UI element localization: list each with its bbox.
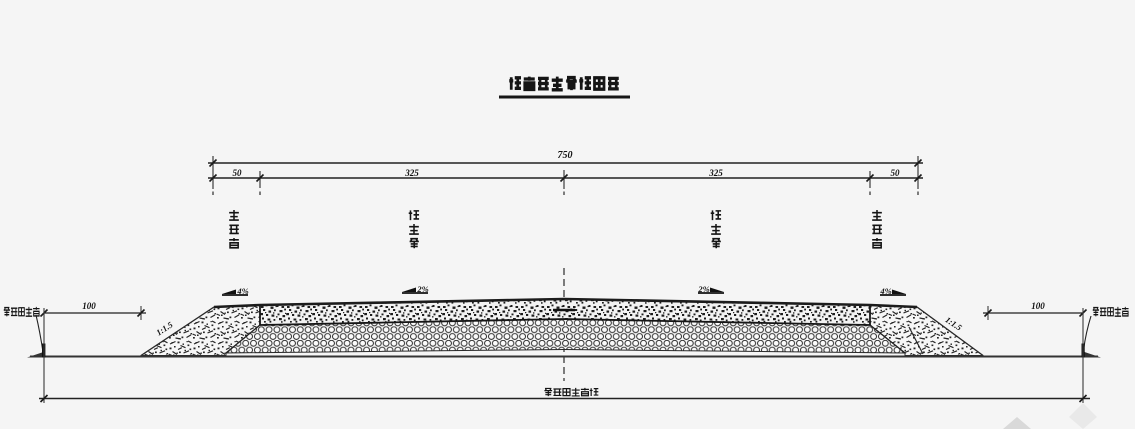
svg-text:100: 100 (82, 301, 96, 311)
svg-text:50: 50 (891, 168, 901, 178)
svg-text:50: 50 (233, 168, 243, 178)
svg-text:325: 325 (708, 168, 723, 178)
svg-text:2%: 2% (416, 284, 428, 294)
svg-text:100: 100 (1031, 301, 1045, 311)
svg-text:325: 325 (404, 168, 419, 178)
svg-text:2%: 2% (697, 284, 709, 294)
svg-text:4%: 4% (879, 286, 891, 296)
svg-text:750: 750 (558, 150, 573, 161)
svg-text:4%: 4% (236, 286, 248, 296)
